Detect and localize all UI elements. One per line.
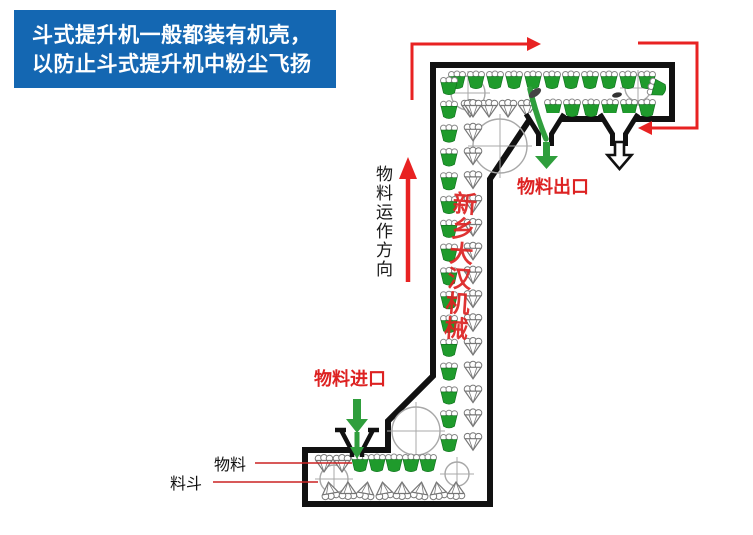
flow-arrowhead-left (638, 121, 652, 135)
bucket-full (639, 99, 656, 117)
material-direction-label: 物料运作方向 (370, 165, 395, 279)
inlet-flow-arrow (346, 399, 368, 433)
bucket-full (441, 434, 458, 452)
bucket-full (441, 172, 458, 190)
bucket-full (601, 71, 618, 89)
bucket-full (441, 339, 458, 357)
bucket-full (620, 71, 637, 89)
bucket-full (441, 386, 458, 404)
bucket-full (564, 99, 581, 117)
bucket-full (403, 454, 420, 472)
bucket-full (369, 454, 386, 472)
bucket-full (582, 71, 599, 89)
bucket-elevator-infographic: 斗式提升机一般都装有机壳， 以防止斗式提升机中粉尘飞扬 物料运作方向 物料出口 … (0, 0, 753, 535)
outlet-flow-arrow (535, 142, 558, 169)
material-label: 物料 (214, 451, 246, 475)
hopper-label: 料斗 (170, 470, 202, 494)
bucket-full (506, 71, 523, 89)
bucket-full (441, 101, 458, 119)
bucket-full (544, 71, 561, 89)
bucket-full (420, 454, 437, 472)
bucket-full (525, 71, 542, 89)
inlet-flow-stream (355, 432, 360, 448)
bucket-full (441, 148, 458, 166)
bucket-full (441, 77, 458, 95)
material-inlet-label: 物料进口 (314, 365, 386, 391)
bucket-full (386, 454, 403, 472)
bucket-full (468, 71, 485, 89)
bucket-full (441, 410, 458, 428)
direction-arrowhead-up (399, 157, 417, 179)
material-outlet-label: 物料出口 (517, 173, 589, 199)
bucket-full (583, 99, 600, 117)
outlet-hollow-arrow (608, 142, 632, 169)
flow-arrowhead-right (527, 37, 541, 51)
bucket-full (563, 71, 580, 89)
bucket-full (441, 125, 458, 143)
bucket-full (487, 71, 504, 89)
bucket-full (441, 363, 458, 381)
